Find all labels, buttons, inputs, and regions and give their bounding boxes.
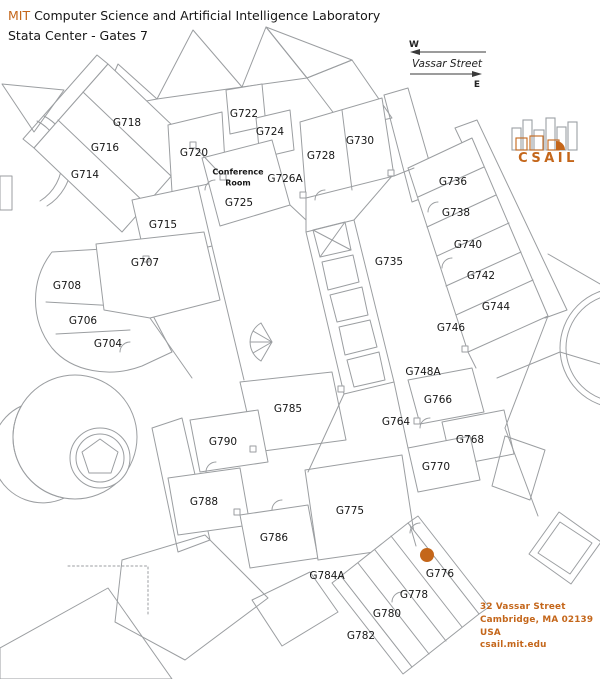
room-label-conference: Conference [212, 168, 264, 177]
room-label-g776: G776 [426, 568, 454, 580]
room-label-g778: G778 [400, 589, 428, 601]
room-label-g748a: G748A [405, 366, 441, 378]
south-center-rooms [152, 368, 545, 568]
top-center-rooms [168, 84, 438, 226]
amphitheater-circle [0, 375, 137, 503]
csail-logo-text: CSAIL [518, 151, 578, 166]
mit-wordmark: MIT [8, 8, 30, 23]
room-label-g775: G775 [336, 505, 364, 517]
room-label-g738: G738 [442, 207, 470, 219]
room-label-g782: G782 [347, 630, 375, 642]
csail-url-link[interactable]: csail.mit.edu [480, 639, 593, 652]
room-label-g708: G708 [53, 280, 81, 292]
compass-east-label: E [474, 80, 480, 90]
csail-logo: CSAIL [512, 118, 578, 166]
room-label-g766: G766 [424, 394, 452, 406]
room-label-g746: G746 [437, 322, 465, 334]
lab-name: Computer Science and Artificial Intellig… [30, 8, 380, 23]
map-subtitle: Stata Center - Gates 7 [8, 26, 380, 46]
lab-title: MIT Computer Science and Artificial Inte… [8, 6, 380, 26]
csail-logo-orange-shape [556, 141, 565, 150]
floor-plan-map: W Vassar Street E CSAIL G718G716G714G720… [0, 0, 600, 679]
selected-room-marker [420, 548, 434, 562]
room-label-g722: G722 [230, 108, 258, 120]
stata-gates7-floor-plan: MIT Computer Science and Artificial Inte… [0, 0, 600, 679]
street-label: Vassar Street [412, 58, 483, 70]
room-label-g725: G725 [225, 197, 253, 209]
room-label-g770: G770 [422, 461, 450, 473]
room-label-g714: G714 [71, 169, 99, 181]
room-label-g706: G706 [69, 315, 97, 327]
room-label-g704: G704 [94, 338, 122, 350]
room-label-g788: G788 [190, 496, 218, 508]
room-label-g716: G716 [91, 142, 119, 154]
room-label-g720: G720 [180, 147, 208, 159]
room-label-g724: G724 [256, 126, 284, 138]
room-label-g764: G764 [382, 416, 410, 428]
room-label-g736: G736 [439, 176, 467, 188]
room-label-g768: G768 [456, 434, 484, 446]
room-label-g742: G742 [467, 270, 495, 282]
room-label-g707: G707 [131, 257, 159, 269]
compass-west-label: W [409, 40, 419, 50]
room-label-g728: G728 [307, 150, 335, 162]
address-city: Cambridge, MA 02139 [480, 614, 593, 627]
central-core [250, 220, 394, 394]
room-label-room: Room [225, 179, 251, 188]
address-country: USA [480, 627, 593, 640]
room-label-g740: G740 [454, 239, 482, 251]
map-header: MIT Computer Science and Artificial Inte… [8, 6, 380, 45]
room-label-g718: G718 [113, 117, 141, 129]
room-label-g786: G786 [260, 532, 288, 544]
room-label-g790: G790 [209, 436, 237, 448]
room-label-g780: G780 [373, 608, 401, 620]
address-street: 32 Vassar Street [480, 601, 593, 614]
room-label-g715: G715 [149, 219, 177, 231]
room-label-g735: G735 [375, 256, 403, 268]
room-label-g744: G744 [482, 301, 510, 313]
room-label-g785: G785 [274, 403, 302, 415]
address-block: 32 Vassar Street Cambridge, MA 02139 USA… [480, 601, 593, 652]
compass: W Vassar Street E [409, 40, 486, 90]
room-label-g730: G730 [346, 135, 374, 147]
room-label-g726a: G726A [267, 173, 303, 185]
room-label-g784a: G784A [309, 570, 345, 582]
